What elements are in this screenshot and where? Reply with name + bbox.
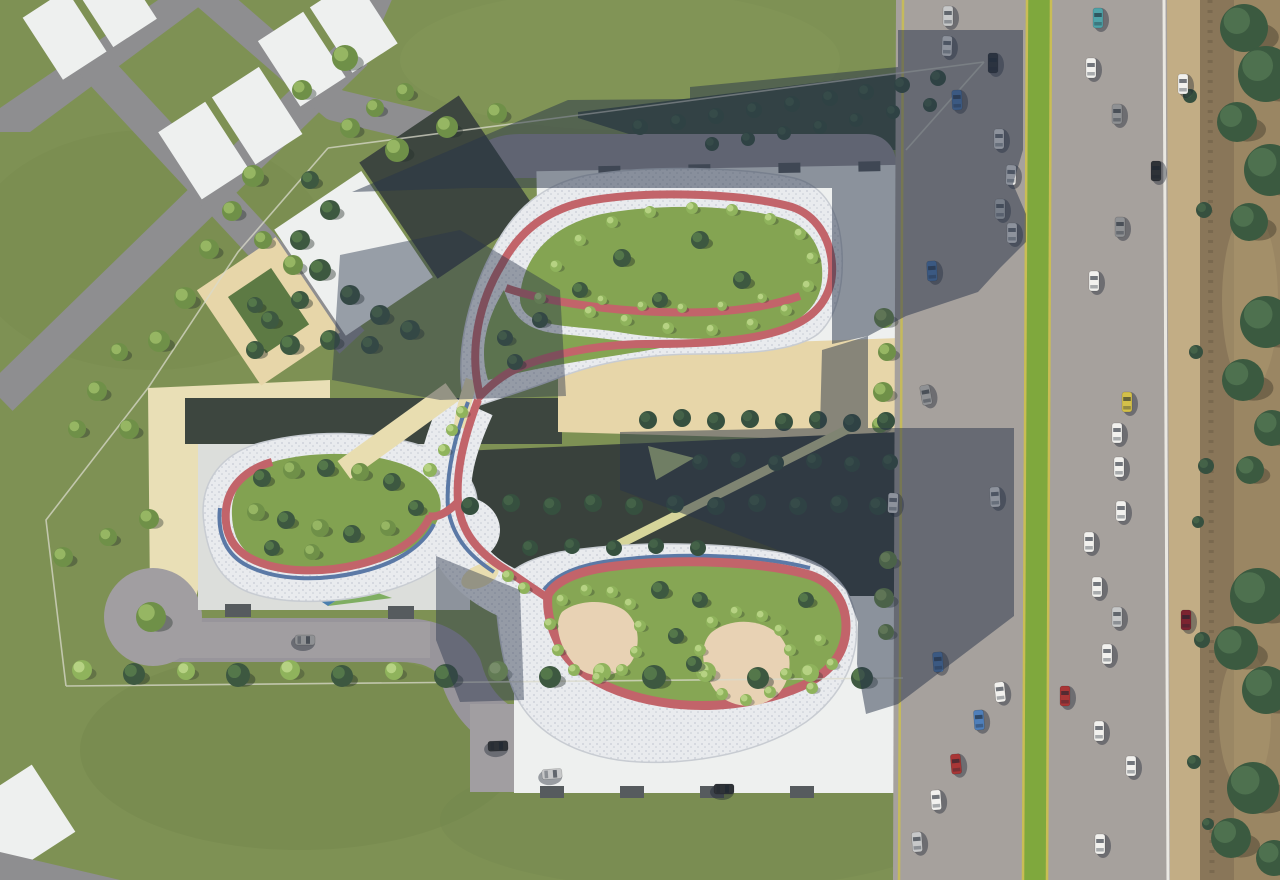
roof-notch: [225, 604, 251, 617]
car: [1116, 501, 1132, 525]
road-shoulder: [1167, 0, 1205, 880]
roof-notch: [790, 786, 814, 798]
car: [1126, 756, 1142, 780]
tree: [584, 494, 602, 512]
car: [1112, 607, 1128, 631]
tree: [564, 538, 580, 554]
tree: [1189, 345, 1203, 359]
car: [1084, 532, 1100, 556]
tree: [1202, 818, 1214, 830]
tree: [690, 540, 706, 556]
tree: [673, 409, 691, 427]
car: [1095, 834, 1111, 858]
tree: [775, 413, 793, 431]
tree: [1187, 755, 1201, 769]
tree: [639, 411, 657, 429]
tree: [522, 540, 538, 556]
car: [1178, 74, 1194, 98]
aerial-site-render: [0, 0, 1280, 880]
tree: [1192, 516, 1204, 528]
car: [1122, 392, 1138, 416]
tree: [707, 412, 725, 430]
roof-notch: [540, 786, 564, 798]
car: [1114, 457, 1130, 481]
car: [1094, 721, 1110, 745]
car: [1112, 104, 1128, 128]
tree: [648, 538, 664, 554]
tree: [741, 410, 759, 428]
tree: [625, 497, 643, 515]
tree: [1196, 202, 1212, 218]
tree: [1194, 632, 1210, 648]
tree: [877, 412, 895, 430]
car: [1092, 577, 1108, 601]
tree: [461, 497, 479, 515]
tree: [1198, 458, 1214, 474]
car: [1089, 271, 1105, 295]
car: [1102, 644, 1118, 668]
car: [1086, 58, 1102, 82]
roof-notch: [620, 786, 644, 798]
car: [291, 635, 315, 651]
tree: [543, 497, 561, 515]
car: [1112, 423, 1128, 447]
car: [1151, 161, 1167, 185]
car: [1060, 686, 1076, 710]
culdesac-road: [150, 622, 430, 658]
tree: [606, 540, 622, 556]
car: [1093, 8, 1109, 32]
roof-notch: [388, 606, 414, 619]
car: [943, 6, 959, 30]
car: [710, 784, 734, 800]
car: [1181, 610, 1197, 634]
car: [1115, 217, 1131, 241]
tree: [502, 494, 520, 512]
site-plan-svg: [0, 0, 1280, 880]
